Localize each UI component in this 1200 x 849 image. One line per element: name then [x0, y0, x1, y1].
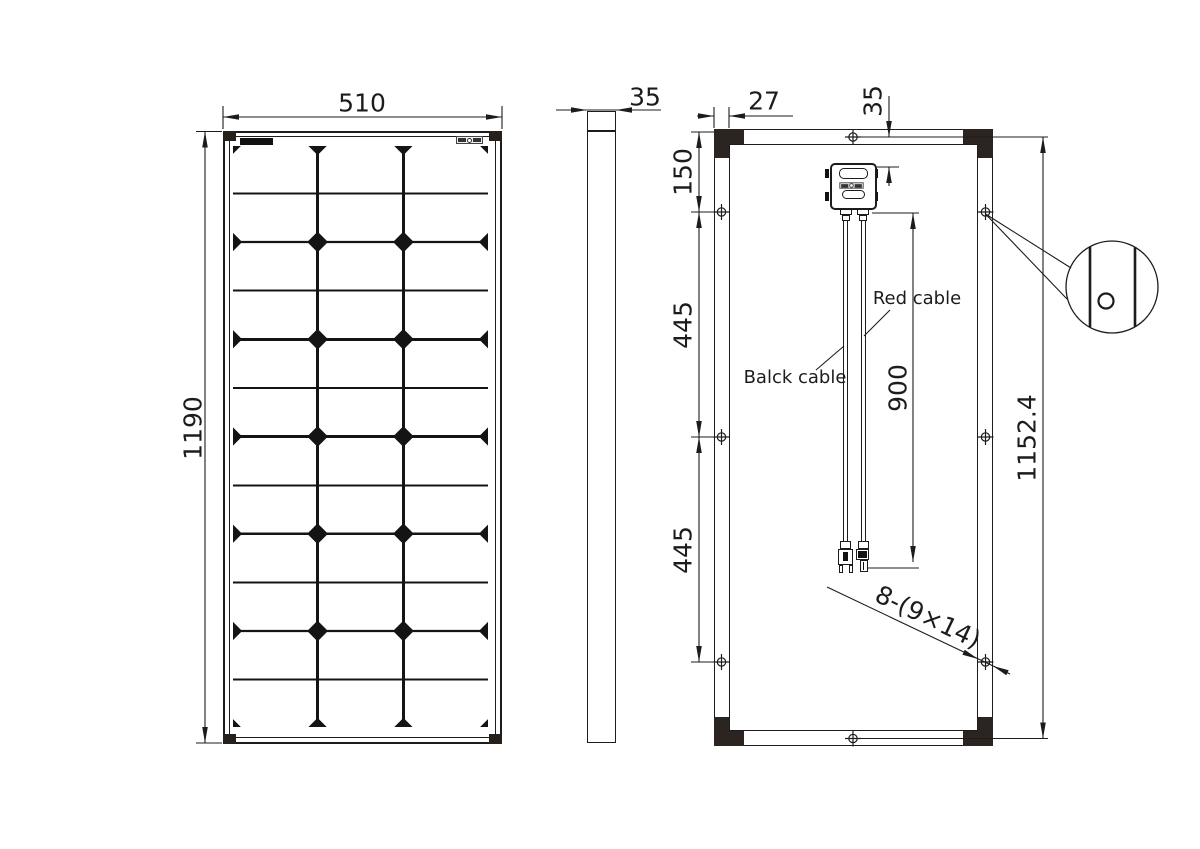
detail-balloon — [1066, 241, 1158, 333]
dim-35-side-label: 35 — [629, 85, 661, 110]
mounting-hole-icon — [714, 204, 730, 220]
dim-150-label: 150 — [671, 148, 696, 196]
red-cable-leader — [864, 310, 890, 336]
mounting-hole-icon — [978, 654, 994, 670]
red-cable-label: Red cable — [873, 290, 961, 308]
dim-900-label: 900 — [886, 364, 911, 412]
dim-445-label-2: 445 — [671, 526, 696, 574]
mounting-hole-icon — [714, 654, 730, 670]
dim-35-rear-label: 35 — [861, 85, 886, 117]
technical-drawing-canvas: 510 1190 35 27 35 150 445 445 900 1152.4… — [0, 0, 1200, 849]
detail-hole-icon — [1099, 294, 1114, 309]
mounting-hole-icon — [714, 429, 730, 445]
detail-leader — [986, 214, 1072, 299]
dim-445-label-1: 445 — [671, 301, 696, 349]
mounting-hole-icon — [845, 731, 861, 747]
mounting-hole-icon — [845, 129, 861, 145]
mounting-hole-icon — [978, 429, 994, 445]
mounting-holes — [714, 129, 994, 747]
dim-27-label: 27 — [748, 89, 780, 114]
dim-1190-label: 1190 — [181, 396, 206, 460]
dim-510-label: 510 — [338, 91, 386, 116]
black-cable-label: Balck cable — [744, 369, 847, 387]
dim-1152-label: 1152.4 — [1015, 394, 1040, 481]
